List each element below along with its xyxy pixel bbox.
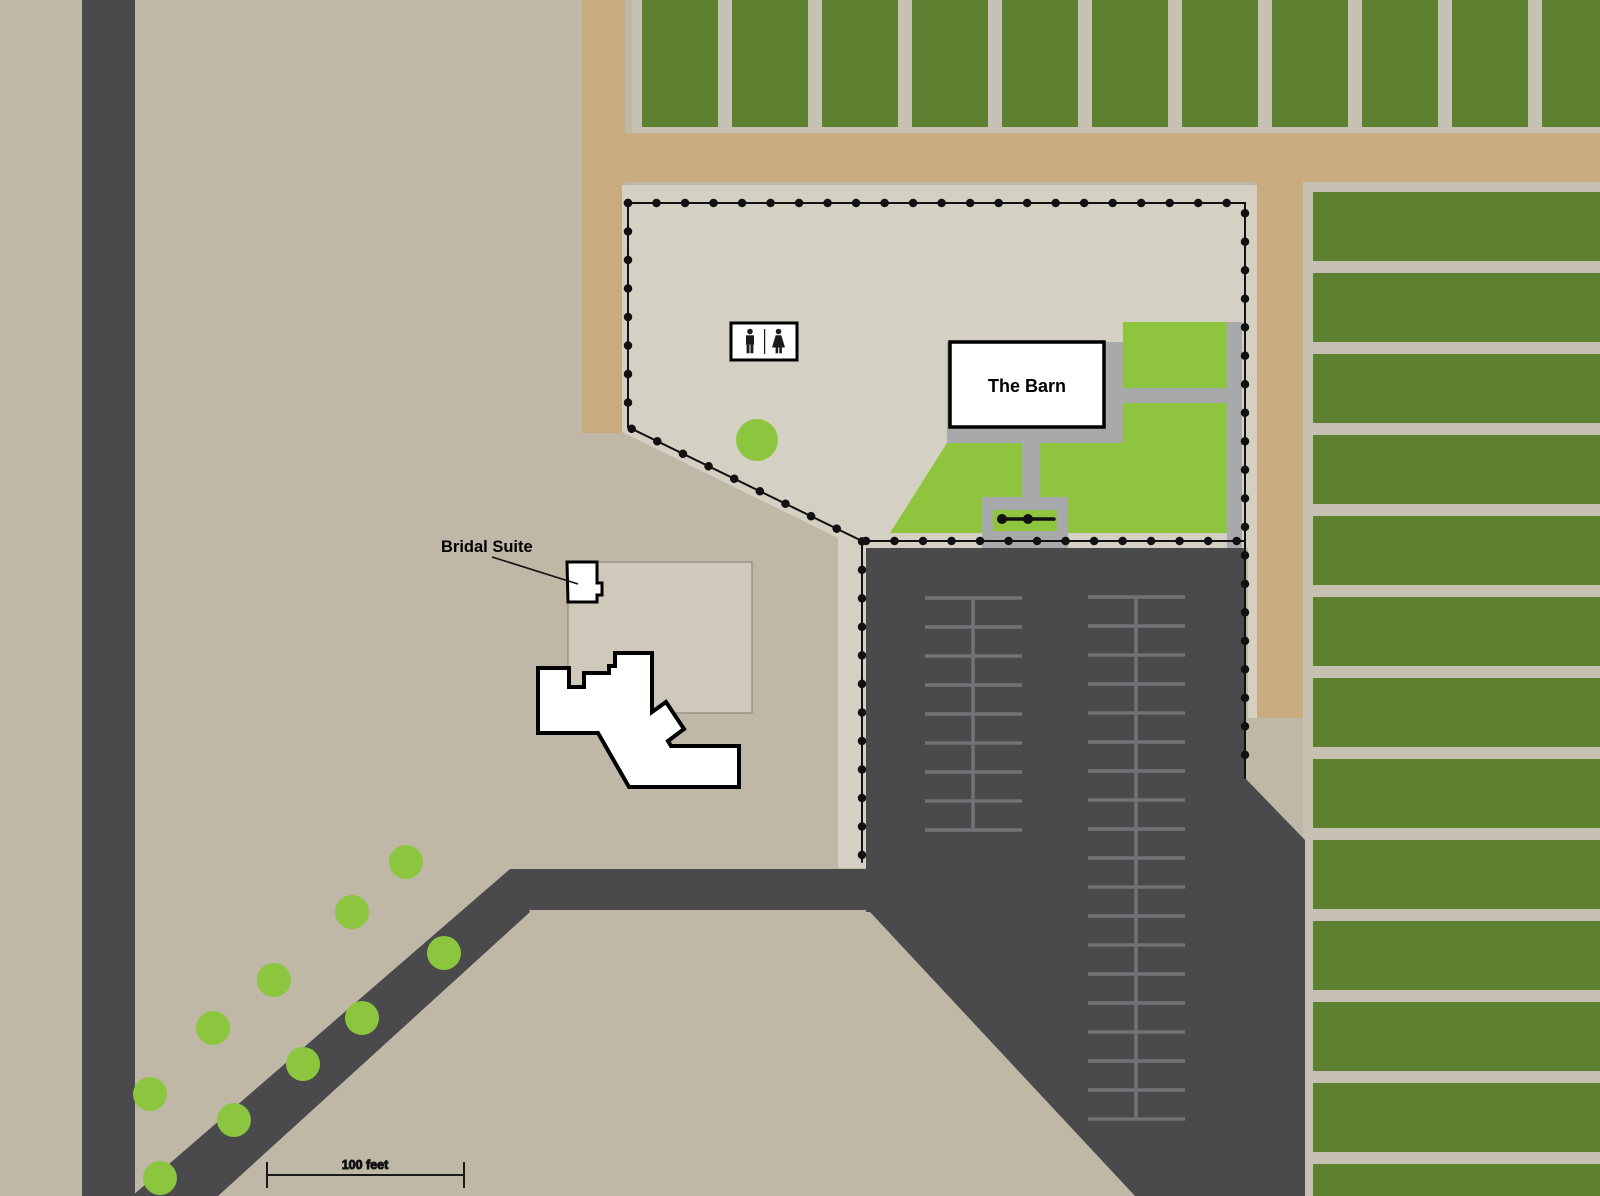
tree (427, 936, 461, 970)
tree (389, 845, 423, 879)
venue-site-map: The Barn Bridal Suite 100 fe (0, 0, 1600, 1196)
upper-walkway (1120, 388, 1227, 403)
restroom-sign (731, 323, 797, 360)
crop-field-strip (1313, 1164, 1600, 1196)
scale-label: 100 feet (342, 1158, 389, 1172)
man-icon-head (747, 329, 753, 335)
tree (345, 1001, 379, 1035)
tree (335, 895, 369, 929)
crop-field-strip (1362, 0, 1438, 127)
crop-field-strip (1313, 435, 1600, 504)
lawn-upper (1123, 322, 1227, 388)
man-icon-body (746, 335, 754, 345)
crop-field-strip (1313, 678, 1600, 747)
crop-field-strip (1313, 597, 1600, 666)
tree (257, 963, 291, 997)
bridal-suite-label: Bridal Suite (441, 538, 533, 556)
woman-icon-head (776, 329, 782, 335)
crop-field-strip (1313, 759, 1600, 828)
crop-field-strip (1452, 0, 1528, 127)
crop-field-strip (1313, 273, 1600, 342)
restroom-divider (764, 329, 765, 354)
access-road (510, 869, 870, 910)
crop-field-strip (1313, 921, 1600, 990)
east-walkway (1227, 322, 1242, 548)
farm-road-west (582, 0, 625, 433)
west-road (82, 0, 135, 1196)
crop-field-strip (1092, 0, 1168, 127)
crop-field-strip (1313, 1083, 1600, 1152)
man-icon-leg (751, 345, 754, 354)
center-walkway (1022, 443, 1040, 497)
tree (286, 1047, 320, 1081)
north-field-strips (642, 0, 1600, 127)
crop-field-strip (1313, 354, 1600, 423)
crop-field-strip (912, 0, 988, 127)
crop-field-strip (642, 0, 718, 127)
crop-field-strip (1272, 0, 1348, 127)
crop-field-strip (732, 0, 808, 127)
woman-icon-leg (776, 348, 779, 354)
farm-road-east (1255, 182, 1303, 718)
tree (196, 1011, 230, 1045)
farm-road-horizontal (582, 133, 1600, 182)
crop-field-strip (1542, 0, 1600, 127)
east-crop-fields (1303, 182, 1600, 1196)
crop-field-strip (1313, 1002, 1600, 1071)
event-area-tree (736, 419, 778, 461)
barn-label: The Barn (988, 376, 1066, 396)
crop-field-strip (1002, 0, 1078, 127)
crop-field-strip (1313, 192, 1600, 261)
barn-sign: The Barn (950, 342, 1104, 427)
north-crop-fields (632, 0, 1600, 133)
woman-icon-leg (779, 348, 782, 354)
tree (217, 1103, 251, 1137)
crop-field-strip (822, 0, 898, 127)
crop-field-strip (1182, 0, 1258, 127)
man-icon-leg (747, 345, 750, 354)
tree (133, 1077, 167, 1111)
crop-field-strip (1313, 840, 1600, 909)
tree (143, 1161, 177, 1195)
crop-field-strip (1313, 516, 1600, 585)
